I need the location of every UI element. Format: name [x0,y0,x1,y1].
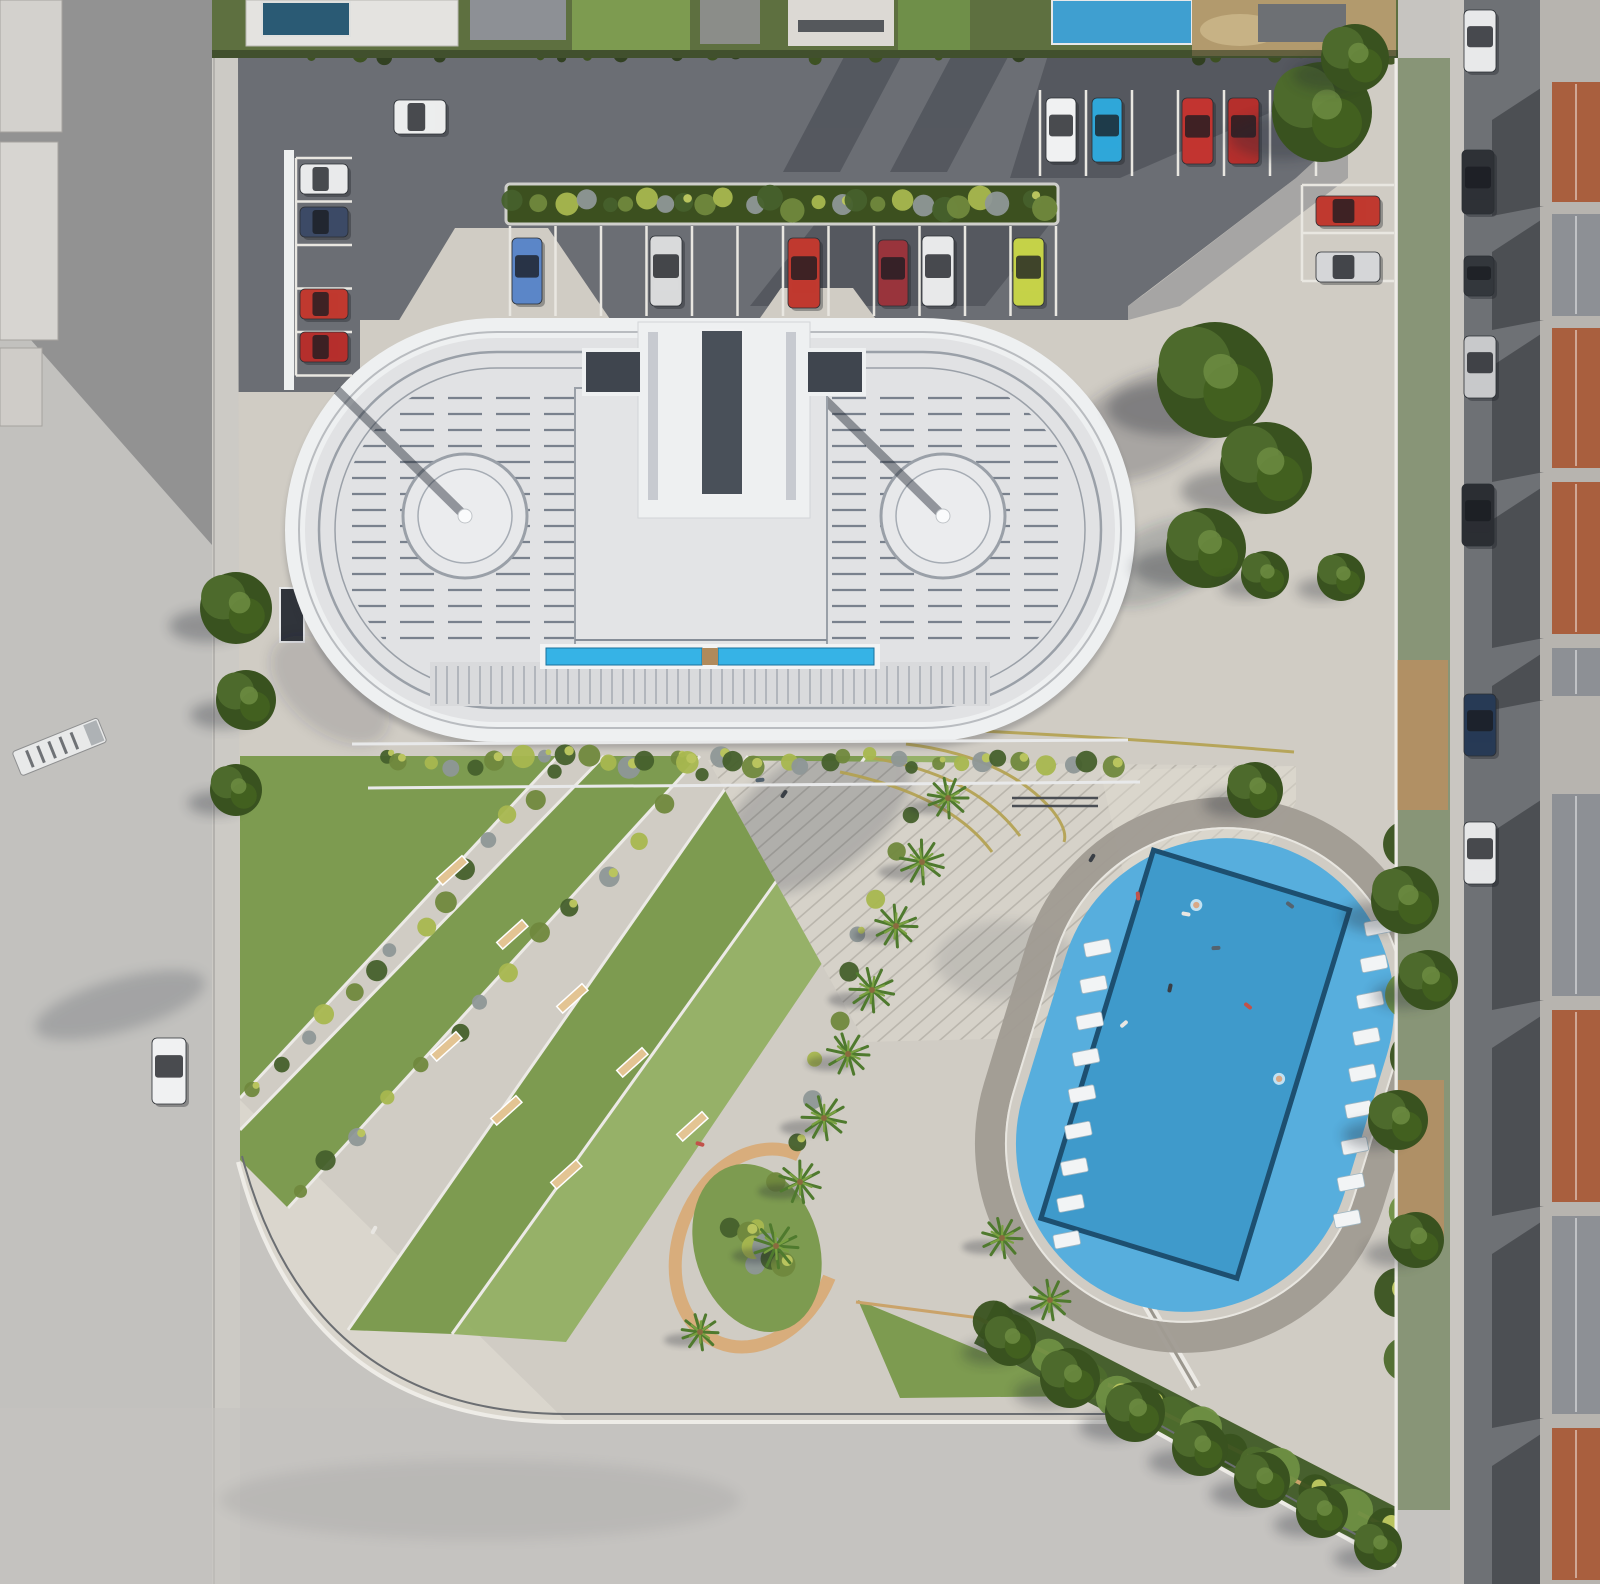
bush [603,197,618,212]
hedge-shadow-line [212,50,1398,58]
bush [547,764,561,778]
bush [294,1185,307,1198]
bush [383,943,397,957]
bush [985,191,1009,215]
bush [472,995,487,1010]
bush [812,195,826,209]
lap-pool [546,648,702,665]
bush [831,1012,850,1031]
building-roof [0,0,62,132]
car-silver [650,236,685,309]
bush [913,195,935,217]
bush [694,194,715,215]
bush [481,832,497,848]
bush [1032,196,1057,221]
bush [366,960,387,981]
paver-path [1396,660,1448,810]
bush [722,751,742,771]
bush [380,1090,394,1104]
bush-highlight [686,753,696,763]
bush [600,755,616,771]
bush [657,195,675,213]
bush [742,756,765,779]
bush [501,190,522,211]
bush-highlight [398,754,406,762]
bush [636,188,658,210]
villa-lawn [572,0,690,50]
bush [526,790,546,810]
car-dark [1464,256,1497,299]
bush [1103,756,1125,778]
car-silver [1316,252,1383,285]
bush-highlight [940,757,946,763]
car-maroon [878,240,911,309]
bush [839,962,859,982]
bush-highlight [564,746,573,755]
bush [413,1057,428,1072]
bush [435,891,457,913]
bush [634,751,654,771]
car-silver [1464,336,1499,401]
bush [498,805,516,823]
rooftop-slot [701,330,743,495]
car-blue [512,238,545,307]
bush [954,756,969,771]
street-curb-strip [1450,0,1464,1584]
car-white [1464,822,1499,887]
bush [713,188,733,208]
main-building [285,318,1135,748]
house-shadow [1492,798,1544,1010]
rooftop-wing [584,350,642,394]
car-red [300,332,351,365]
bush [512,745,535,768]
car-white [300,164,351,197]
bush-highlight [752,758,762,768]
building-roof [0,142,58,340]
bush-highlight [569,899,577,907]
neighbor-villas-top [212,0,1398,58]
bush [780,198,804,222]
houses [1492,78,1600,1584]
car-white [922,236,957,309]
villa-pool [262,2,350,36]
bush [655,794,674,813]
aerial-site-render [0,0,1600,1584]
house [1492,790,1600,1010]
bush [989,750,1006,767]
villa-lawn [898,0,970,50]
bush [695,768,708,781]
bush [417,918,436,937]
bush-highlight [494,752,503,761]
bush [274,1057,290,1073]
bush [630,833,647,850]
parking-wall [284,150,294,390]
car-lime [1013,238,1047,309]
bush [845,189,868,212]
villa-skylight [798,20,884,32]
bush [676,751,699,774]
bush [530,922,550,942]
bush [866,890,885,909]
car-cyan [1092,98,1125,165]
bush [757,185,783,211]
road-stain [220,1460,740,1540]
villa-pool [1052,0,1192,44]
bush [835,749,850,764]
bush-highlight [546,749,552,755]
bush [555,192,578,215]
bush [529,194,547,212]
bush [870,196,885,211]
bush [346,983,364,1001]
car-white [394,100,449,137]
bush [499,963,518,982]
villa-roof [700,0,760,44]
car-white [1046,98,1079,165]
car-black [1462,150,1497,217]
bush [1076,751,1098,773]
bush [720,1218,740,1238]
car-red [788,238,823,311]
bush [791,758,808,775]
bush [1036,755,1056,775]
car-white [152,1038,189,1107]
car-darkblue [300,207,351,240]
bush [425,756,438,769]
house [1492,1006,1600,1216]
building-roof [0,348,42,426]
bush [947,195,970,218]
bush [315,1150,335,1170]
car-red [1316,196,1383,229]
bush-highlight [253,1082,260,1089]
car-white [1464,10,1499,75]
house-shadow [1492,1014,1544,1216]
rooftop-wing [806,350,864,394]
bush [891,751,907,767]
scene-svg [0,0,1600,1584]
rooftop-groove [648,332,658,500]
bush [577,189,597,209]
lap-pool [718,648,874,665]
bush [314,1004,334,1024]
bush [302,1031,316,1045]
house-shadow [1492,1220,1544,1428]
right-street [1396,0,1600,1584]
bush [892,189,913,210]
bush-highlight [357,1129,365,1137]
bush-highlight [1113,758,1123,768]
car-black [1462,484,1497,549]
bush [905,761,918,774]
villa-roof [470,0,566,40]
person [1211,946,1220,951]
bush [442,760,459,777]
bush [863,747,876,760]
car-darkblue [1464,694,1499,759]
bush [618,196,633,211]
bush-highlight [683,194,692,203]
bush [578,745,600,767]
lap-pool-deck-gap [702,648,718,665]
bush-highlight [609,868,618,877]
bush [467,760,483,776]
house [1492,1212,1600,1428]
bush-highlight [747,1224,757,1234]
car-red [1182,98,1216,167]
car-red [300,289,351,322]
bush-highlight [1020,753,1029,762]
rooftop-groove [786,332,796,500]
